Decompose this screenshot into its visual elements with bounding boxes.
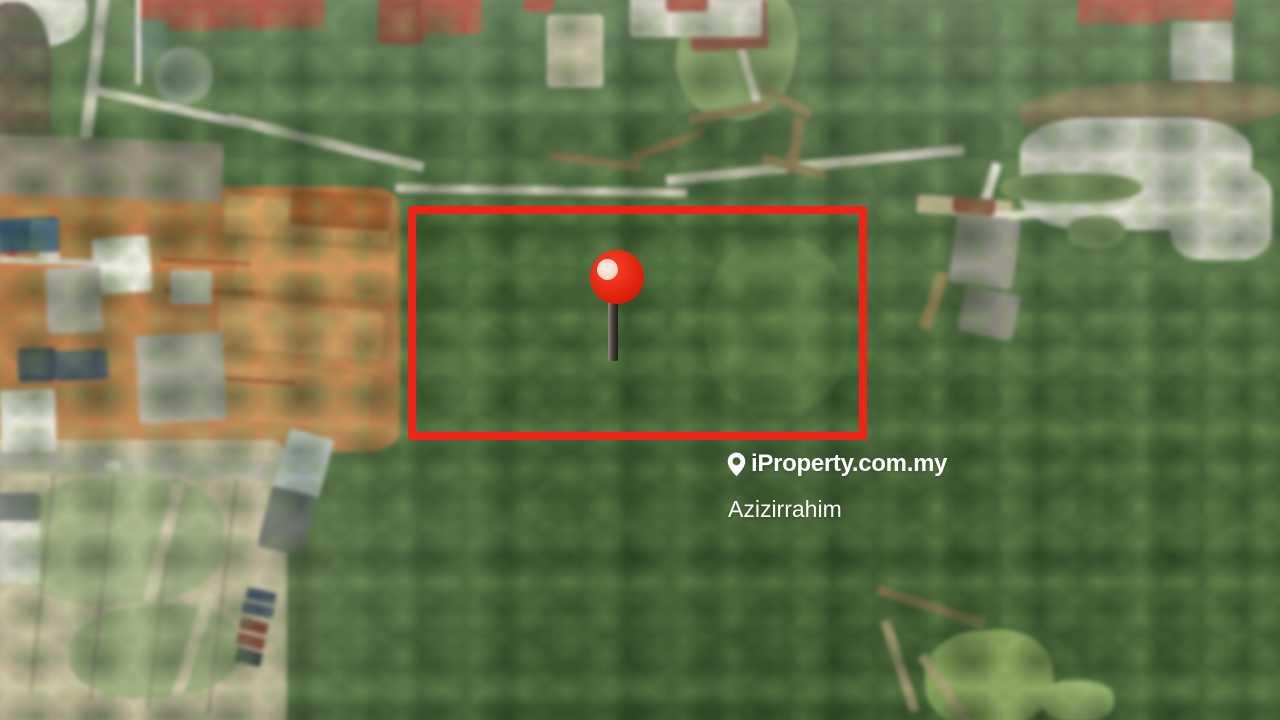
pond (162, 55, 202, 95)
field-track (880, 619, 919, 713)
dark-roof-house (55, 349, 108, 382)
listing-photo: iProperty.com.my Azizirrahim (0, 0, 1280, 720)
map-pin-stick (608, 299, 618, 361)
property-boundary-box (408, 206, 867, 440)
quarry-green-patch (1000, 173, 1142, 203)
concrete-pad (170, 270, 212, 304)
white-fence (136, 0, 141, 85)
red-roof-house (666, 0, 708, 12)
dark-roof-house (17, 347, 56, 382)
map-pin-highlight (597, 259, 618, 280)
brown-roof-house (377, 0, 425, 45)
red-roof-house (524, 0, 554, 12)
grass-field (922, 626, 1057, 720)
concrete-pad (44, 266, 103, 335)
red-map-pin-marker (590, 250, 644, 304)
blue-roof-building (30, 220, 58, 250)
grey-roof (0, 493, 40, 521)
concrete-court (547, 15, 603, 87)
rubble-band (0, 134, 224, 203)
red-earth-patch (289, 190, 391, 232)
watermark: iProperty.com.my (727, 450, 947, 478)
bright-canopy (550, 550, 780, 700)
watermark-brand: iProperty.com.my (751, 450, 947, 478)
watermark-agent-name: Azizirrahim (728, 496, 842, 523)
white-house (0, 389, 57, 453)
red-roof-house (1157, 0, 1234, 21)
white-car (106, 461, 120, 470)
location-pin-icon (727, 452, 746, 477)
quarry-clearing (1170, 168, 1272, 260)
unfinished-building (948, 212, 1021, 290)
red-roof-house (422, 0, 482, 34)
concrete-pad (135, 332, 227, 424)
quarry-green-patch (1067, 216, 1125, 248)
grass-field (1042, 680, 1114, 720)
red-roof-house (1078, 0, 1164, 24)
unfinished-building (957, 285, 1021, 342)
dirt-track (919, 272, 948, 331)
field-path (876, 585, 986, 629)
